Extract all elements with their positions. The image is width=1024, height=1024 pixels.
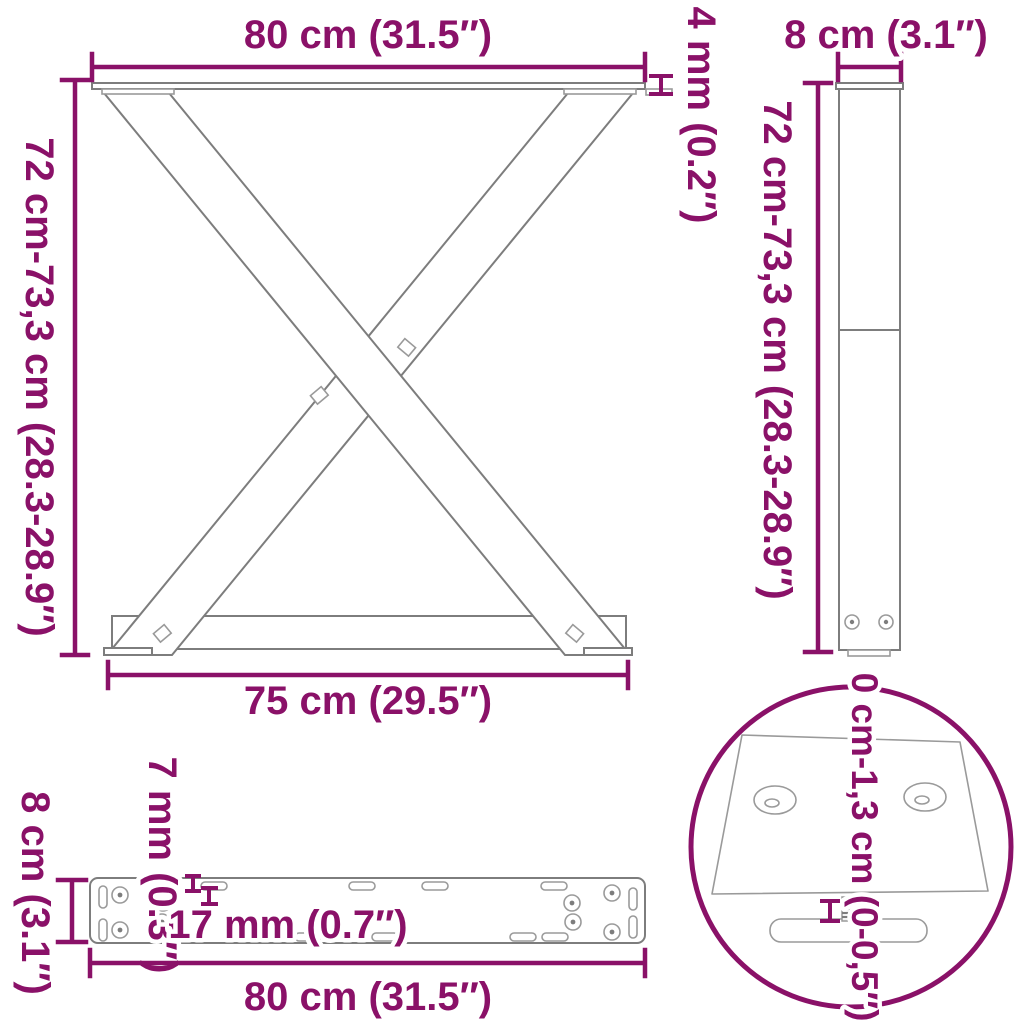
mount-tab-right bbox=[564, 89, 636, 94]
slot-vertical bbox=[99, 919, 107, 941]
top-plate bbox=[92, 83, 645, 89]
side-depth-dimension-line bbox=[838, 54, 901, 80]
slot-vertical bbox=[99, 886, 107, 908]
countersunk-hole-center bbox=[915, 796, 929, 804]
screw-center bbox=[118, 893, 123, 898]
side-height-dimension-line bbox=[805, 83, 831, 652]
slot-horizontal bbox=[510, 933, 536, 941]
side-view bbox=[836, 83, 903, 656]
front-bottom-width-label: 75 cm (29.5″) bbox=[244, 679, 492, 723]
screw-center bbox=[118, 928, 123, 933]
side-height-label: 72 cm-73,3 cm (28.3-28.9″) bbox=[755, 100, 799, 599]
foot-plate-right bbox=[584, 648, 632, 655]
plate-thickness-label: 4 mm (0.2″) bbox=[679, 6, 723, 223]
side-depth-label: 8 cm (3.1″) bbox=[784, 13, 988, 57]
side-foot bbox=[848, 650, 890, 656]
diagram-canvas: 80 cm (31.5″) 4 mm (0.2″) 72 cm-73,3 cm … bbox=[0, 0, 1024, 1024]
front-height-label: 72 cm-73,3 cm (28.3-28.9″) bbox=[17, 137, 61, 636]
plate-depth-label: 8 cm (3.1″) bbox=[13, 791, 57, 995]
slot-horizontal bbox=[422, 882, 448, 890]
side-top-plate bbox=[836, 83, 903, 89]
front-top-dimension-line bbox=[92, 54, 645, 80]
screw-center bbox=[610, 930, 615, 935]
screw-center bbox=[884, 620, 888, 624]
front-view bbox=[92, 83, 672, 655]
plate-depth-dimension-line bbox=[58, 880, 86, 942]
side-profile-body bbox=[839, 88, 900, 650]
plate-width-label: 80 cm (31.5″) bbox=[244, 975, 492, 1019]
large-hole-label: 17 mm (0.7″) bbox=[168, 903, 407, 947]
slot-vertical bbox=[629, 916, 637, 938]
screw-center bbox=[850, 620, 854, 624]
slot-horizontal bbox=[349, 882, 375, 890]
foot-plate-left bbox=[104, 648, 152, 655]
countersunk-hole-center bbox=[765, 799, 779, 807]
screw-center bbox=[610, 891, 615, 896]
mount-tab-left bbox=[102, 89, 174, 94]
slot-vertical bbox=[629, 888, 637, 910]
adjustable-height-bracket bbox=[822, 901, 838, 921]
slot-horizontal bbox=[542, 933, 568, 941]
dimension-diagram: 80 cm (31.5″) 4 mm (0.2″) 72 cm-73,3 cm … bbox=[0, 0, 1024, 1024]
screw-center bbox=[571, 920, 576, 925]
front-top-width-label: 80 cm (31.5″) bbox=[244, 13, 492, 57]
adjustable-height-label: 0 cm-1,3 cm (0-0,5″) bbox=[844, 673, 885, 1022]
screw-center bbox=[570, 901, 575, 906]
slot-horizontal bbox=[541, 882, 567, 890]
front-height-dimension-line bbox=[62, 80, 88, 655]
